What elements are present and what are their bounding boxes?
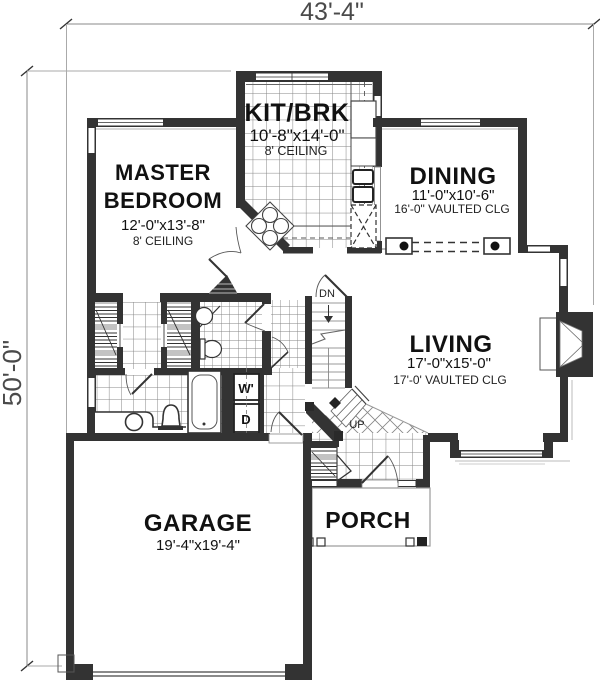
svg-text:GARAGE: GARAGE xyxy=(144,510,252,537)
svg-text:43'-4": 43'-4" xyxy=(300,0,364,26)
svg-text:D: D xyxy=(241,412,250,427)
svg-text:MASTER: MASTER xyxy=(115,160,211,185)
svg-text:50'-0": 50'-0" xyxy=(0,340,27,406)
svg-text:W': W' xyxy=(238,381,253,396)
svg-text:8' CEILING: 8' CEILING xyxy=(265,144,328,158)
svg-text:UP: UP xyxy=(349,419,364,431)
svg-text:8' CEILING: 8' CEILING xyxy=(133,234,193,248)
svg-text:PORCH: PORCH xyxy=(325,507,411,533)
svg-text:17'-0"x15'-0": 17'-0"x15'-0" xyxy=(407,355,491,372)
svg-text:19'-4"x19'-4": 19'-4"x19'-4" xyxy=(156,537,240,554)
svg-text:DINING: DINING xyxy=(410,163,497,190)
svg-text:17'-0' VAULTED CLG: 17'-0' VAULTED CLG xyxy=(393,373,507,387)
svg-text:DN: DN xyxy=(319,288,335,300)
svg-text:LIVING: LIVING xyxy=(409,331,492,358)
svg-text:BEDROOM: BEDROOM xyxy=(104,188,222,213)
svg-text:KIT/BRK: KIT/BRK xyxy=(245,99,350,127)
svg-text:10'-8"x14'-0": 10'-8"x14'-0" xyxy=(249,126,344,145)
svg-text:16'-0" VAULTED CLG: 16'-0" VAULTED CLG xyxy=(394,202,509,216)
svg-text:12'-0"x13'-8": 12'-0"x13'-8" xyxy=(121,217,205,234)
